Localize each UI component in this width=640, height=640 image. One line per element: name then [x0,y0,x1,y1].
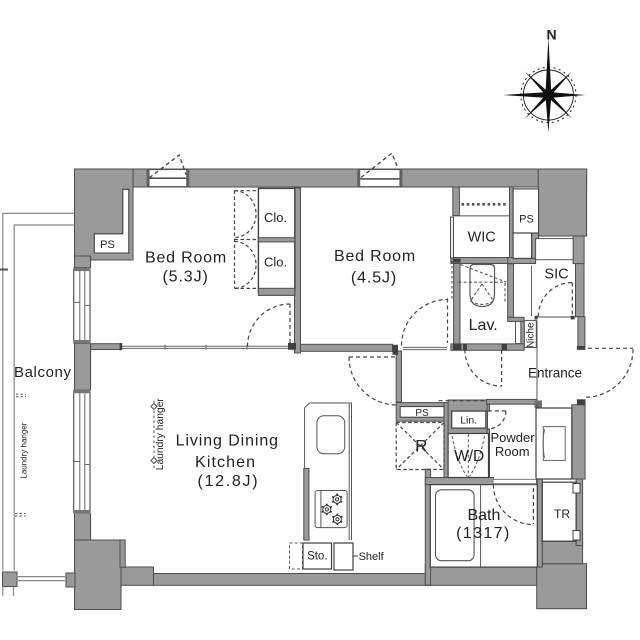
svg-text:Bath: Bath [467,507,500,524]
svg-text:Lin.: Lin. [460,414,477,426]
svg-text:Balcony: Balcony [14,364,72,381]
svg-text:Lav.: Lav. [469,317,498,334]
svg-text:Shelf: Shelf [359,551,385,563]
svg-text:Entrance: Entrance [528,365,582,380]
svg-text:Living Dining: Living Dining [176,433,279,450]
svg-text:(5.3J): (5.3J) [162,269,208,286]
svg-text:N: N [546,27,556,43]
svg-text:SIC: SIC [544,266,568,282]
svg-text:TR: TR [554,507,570,521]
svg-text:Clo.: Clo. [264,210,287,225]
svg-text:Clo.: Clo. [264,255,287,270]
svg-text:(12.8J): (12.8J) [198,473,260,490]
svg-text:Laundry hanger: Laundry hanger [155,398,166,471]
svg-text:Kitchen: Kitchen [195,454,256,471]
svg-text:PS: PS [100,239,115,251]
svg-text:(4.5J): (4.5J) [351,270,397,287]
svg-text:W/D: W/D [454,448,484,465]
svg-text:Laundry hanger: Laundry hanger [20,422,29,478]
svg-text:PS: PS [415,408,429,419]
svg-text:R: R [415,436,427,455]
svg-text:(1317): (1317) [456,525,511,542]
svg-text:WIC: WIC [468,229,496,245]
svg-text:Bed Room: Bed Room [334,248,416,265]
svg-text:Niche: Niche [525,322,536,348]
svg-text:PS: PS [519,213,534,225]
svg-text:Powder: Powder [490,430,535,445]
svg-text:Sto.: Sto. [307,551,327,563]
svg-text:Room: Room [495,444,530,459]
svg-text:Bed Room: Bed Room [145,250,227,267]
